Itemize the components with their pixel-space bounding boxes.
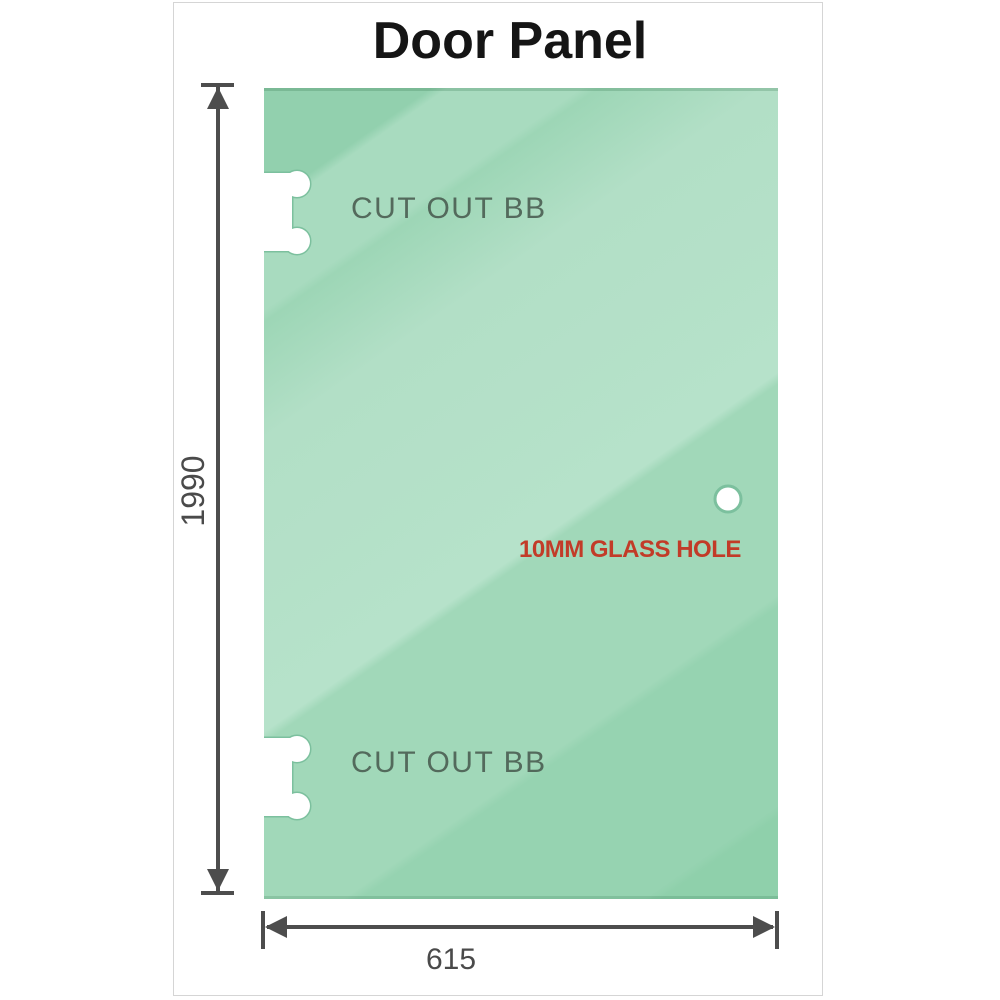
glass-top-edge xyxy=(264,88,778,91)
glass-bottom-edge xyxy=(264,896,778,899)
height-dimension-bottom-tick xyxy=(201,891,234,895)
width-dimension-line xyxy=(267,925,773,929)
diagram-frame: Door Panel xyxy=(173,2,823,996)
cutout-bottom-label: CUT OUT BB xyxy=(351,747,547,779)
arrow-down-icon xyxy=(207,869,229,891)
page-title: Door Panel xyxy=(174,9,822,73)
arrow-right-icon xyxy=(753,916,775,938)
cutout-top-label: CUT OUT BB xyxy=(351,193,547,225)
width-dimension-right-tick xyxy=(775,911,779,949)
height-dimension-line xyxy=(216,87,220,893)
arrow-left-icon xyxy=(265,916,287,938)
arrow-up-icon xyxy=(207,87,229,109)
height-dimension-label: 1990 xyxy=(177,431,209,551)
glass-hole xyxy=(715,486,741,512)
glass-hole-label: 10MM GLASS HOLE xyxy=(519,537,741,563)
width-dimension-label: 615 xyxy=(411,944,491,976)
